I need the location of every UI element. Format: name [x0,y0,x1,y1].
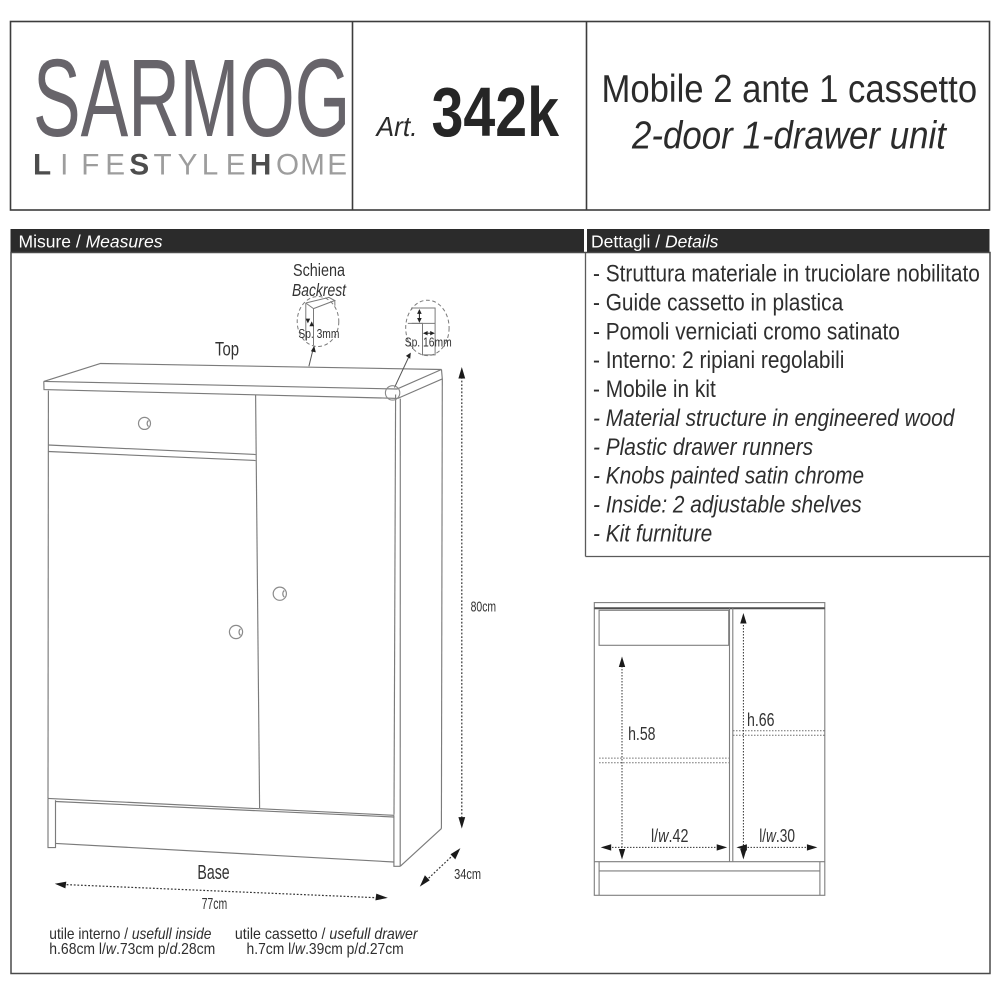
svg-text:Schiena: Schiena [293,261,345,281]
svg-text:34cm: 34cm [454,865,481,882]
svg-text:- Plastic drawer runners: - Plastic drawer runners [593,432,813,460]
svg-text:Art.: Art. [375,112,418,143]
svg-text:O: O [276,149,299,182]
svg-text:- Struttura materiale in truci: - Struttura materiale in truciolare nobi… [593,259,980,287]
svg-text:L: L [202,149,219,182]
svg-text:E: E [327,149,347,182]
svg-text:h.7cm l/w.39cm p/d.27cm: h.7cm l/w.39cm p/d.27cm [247,940,404,958]
svg-text:- Mobile in kit: - Mobile in kit [593,374,716,402]
svg-text:- Material structure in engine: - Material structure in engineered wood [593,403,956,431]
svg-text:Top: Top [215,339,239,360]
svg-text:Mobile 2 ante 1 cassetto: Mobile 2 ante 1 cassetto [602,67,978,110]
svg-text:T: T [154,149,172,182]
svg-text:h.68cm l/w.73cm p/d.28cm: h.68cm l/w.73cm p/d.28cm [49,940,215,958]
svg-text:M: M [300,149,325,182]
svg-text:342k: 342k [432,73,560,152]
svg-text:77cm: 77cm [202,895,228,913]
svg-text:Sp. 3mm: Sp. 3mm [298,328,339,341]
svg-text:Misure / Measures: Misure / Measures [19,232,163,252]
svg-text:F: F [81,149,99,182]
svg-text:- Inside: 2 adjustable shelves: - Inside: 2 adjustable shelves [593,490,862,518]
svg-text:- Guide cassetto in plastica: - Guide cassetto in plastica [593,288,843,316]
svg-text:- Pomoli verniciati cromo sati: - Pomoli verniciati cromo satinato [593,317,900,345]
svg-text:- Interno: 2 ripiani regolabil: - Interno: 2 ripiani regolabili [593,346,844,374]
svg-text:h.58: h.58 [628,723,655,744]
svg-text:L: L [33,149,51,182]
svg-text:- Kit furniture: - Kit furniture [593,519,712,547]
svg-text:Base: Base [197,860,229,883]
svg-text:- Knobs painted satin chrome: - Knobs painted satin chrome [593,461,864,489]
svg-text:E: E [105,149,125,182]
svg-text:H: H [250,149,271,182]
svg-text:SARMOG: SARMOG [33,36,350,159]
svg-text:I: I [60,149,68,182]
svg-text:2-door 1-drawer unit: 2-door 1-drawer unit [631,114,948,157]
svg-text:E: E [226,149,246,182]
svg-text:l/w.30: l/w.30 [759,826,795,847]
svg-text:h.66: h.66 [747,709,775,730]
svg-text:80cm: 80cm [471,598,497,615]
svg-text:Y: Y [178,149,198,182]
svg-text:Dettagli / Details: Dettagli / Details [591,232,719,252]
svg-text:l/w.42: l/w.42 [651,825,688,846]
svg-text:S: S [129,149,149,182]
svg-text:Sp. 16mm: Sp. 16mm [405,336,452,349]
svg-text:Backrest: Backrest [292,282,347,301]
